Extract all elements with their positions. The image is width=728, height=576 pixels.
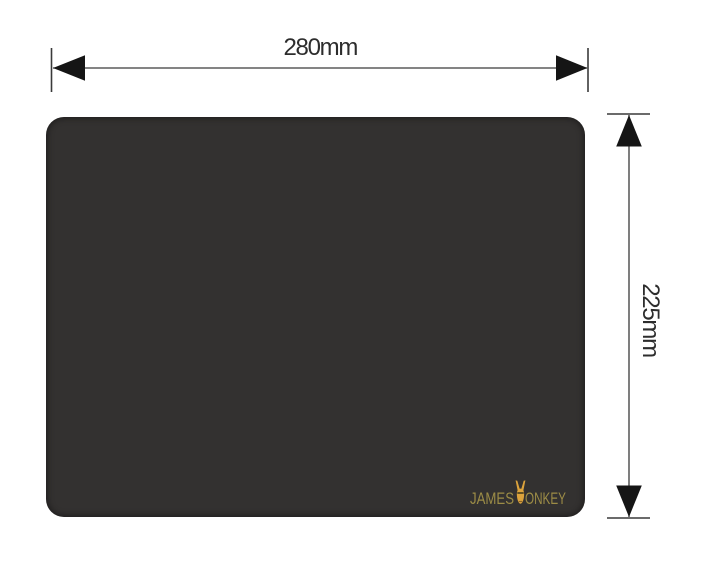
svg-text:JAMES: JAMES xyxy=(470,489,514,508)
